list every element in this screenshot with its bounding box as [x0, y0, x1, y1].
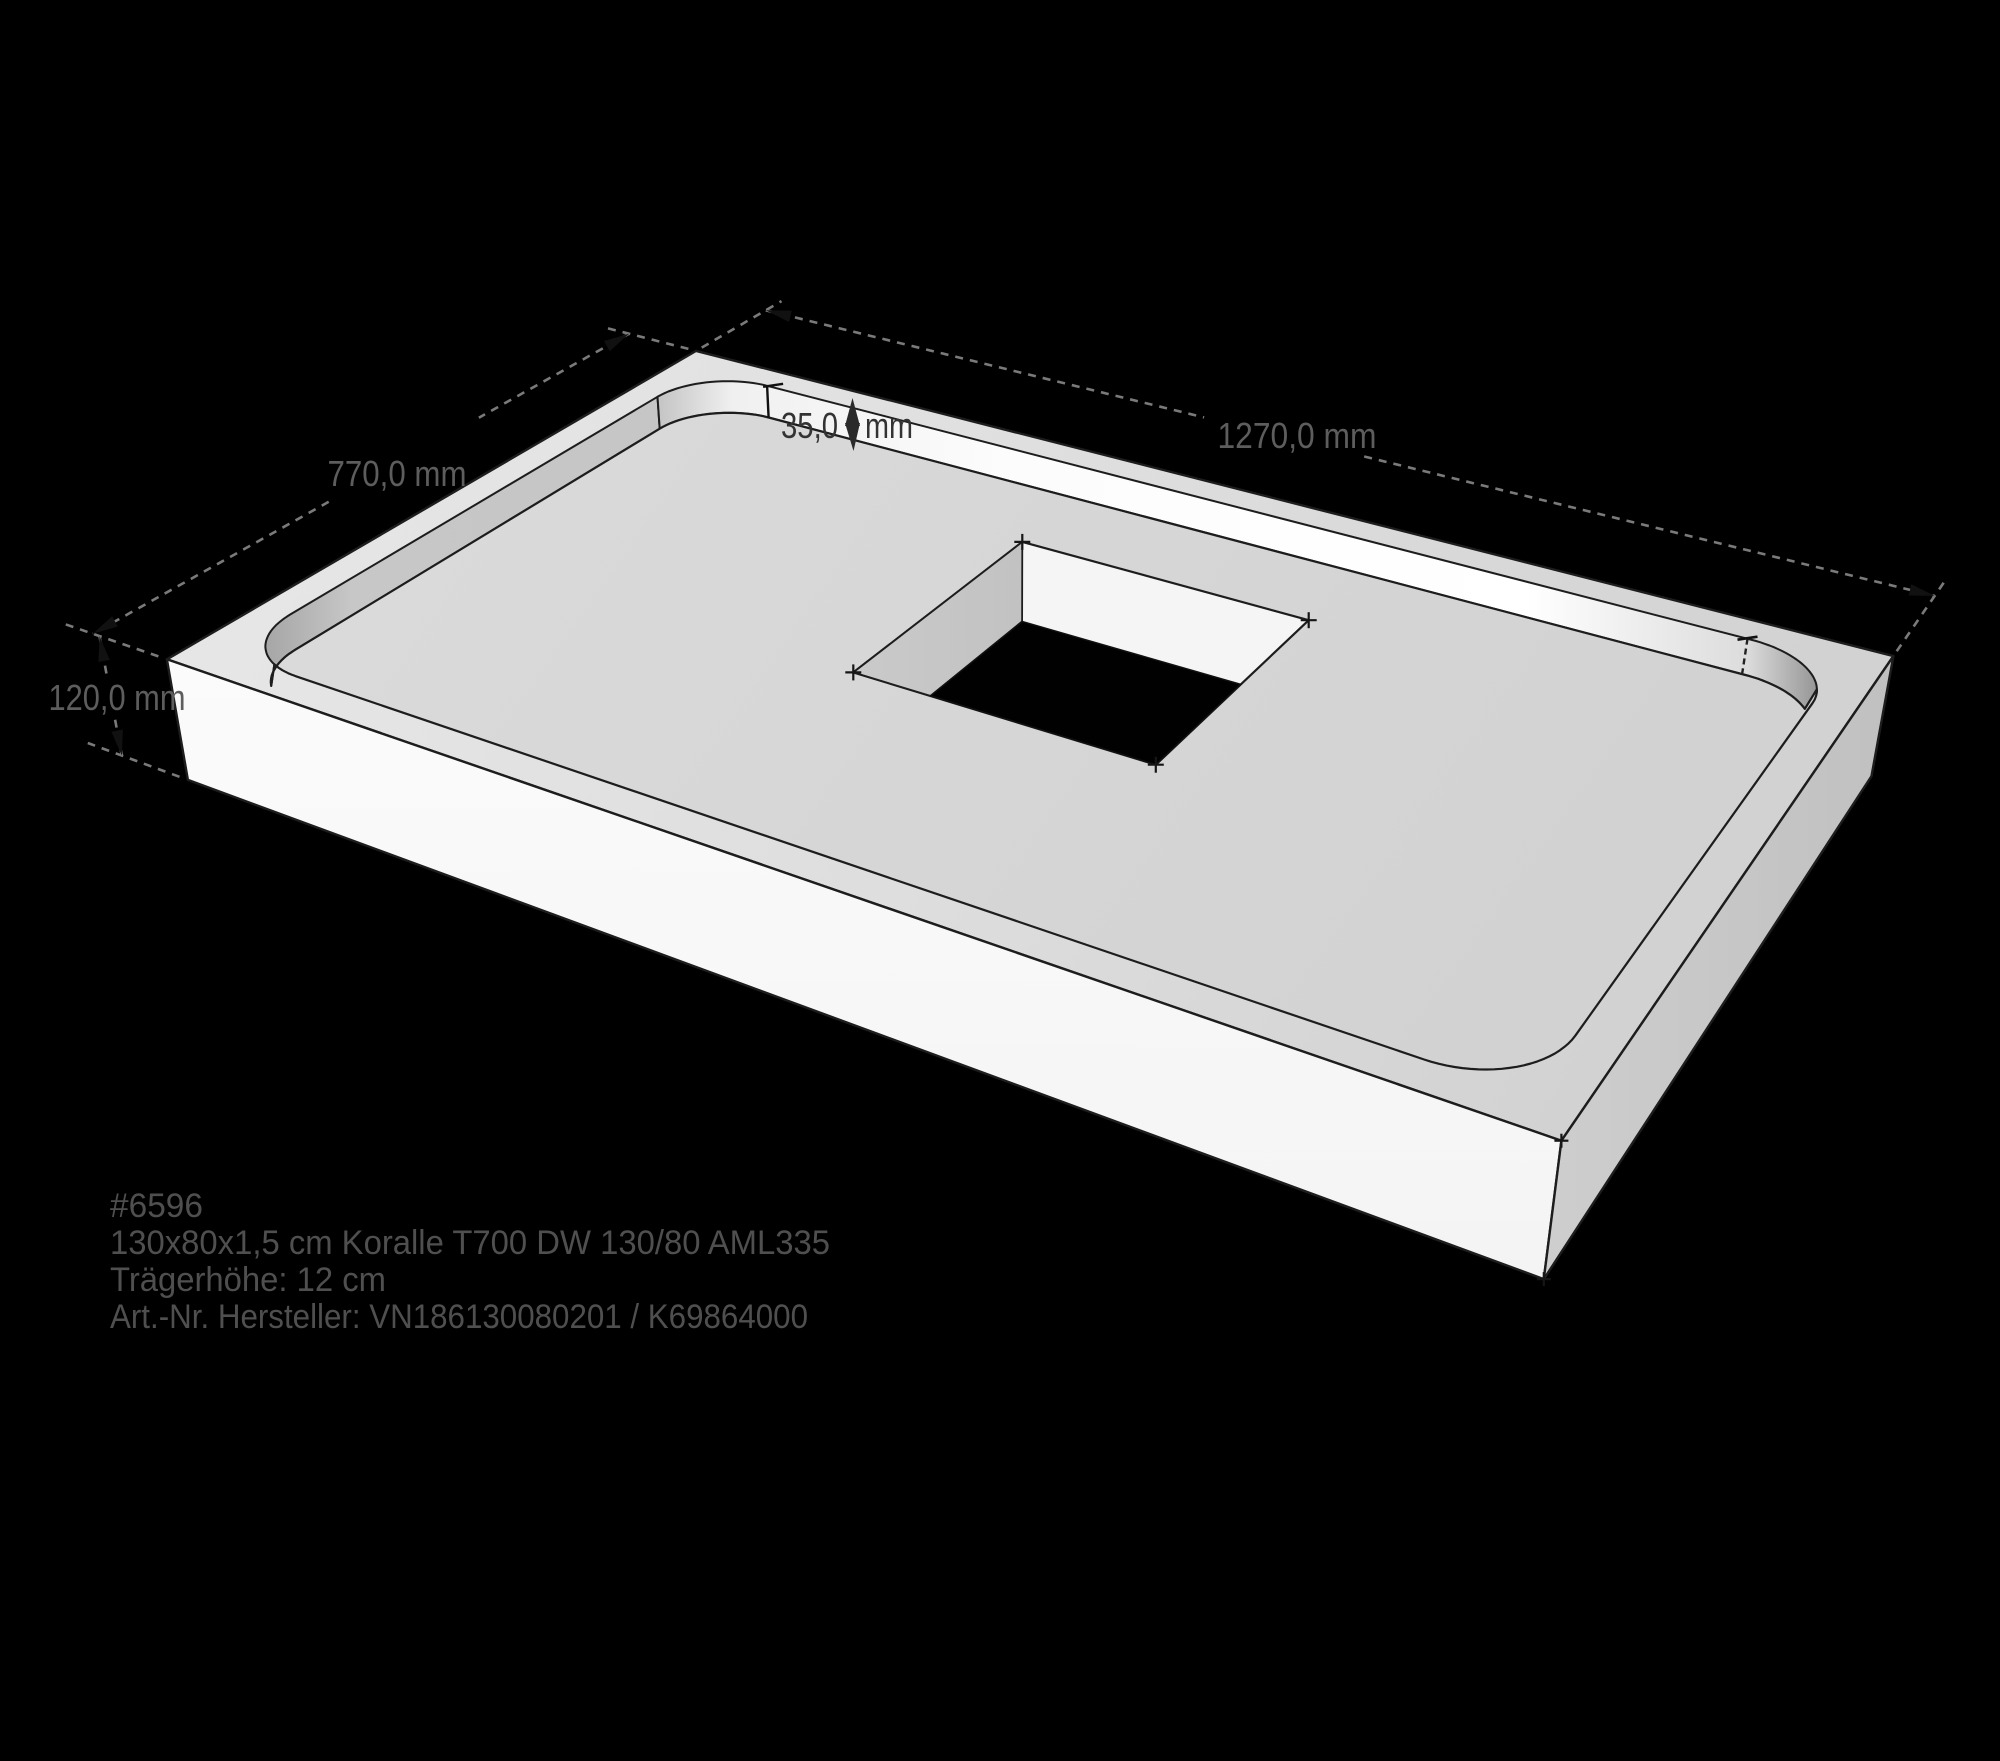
svg-text:Trägerhöhe: 12 cm: Trägerhöhe: 12 cm — [110, 1261, 386, 1299]
svg-text:120,0 mm: 120,0 mm — [49, 677, 186, 718]
svg-text:mm: mm — [865, 405, 913, 446]
svg-text:770,0 mm: 770,0 mm — [328, 453, 467, 494]
svg-text:130x80x1,5 cm Koralle T700 DW: 130x80x1,5 cm Koralle T700 DW 130/80 AML… — [110, 1224, 830, 1262]
svg-text:Art.-Nr. Hersteller: VN1861300: Art.-Nr. Hersteller: VN186130080201 / K6… — [110, 1298, 808, 1336]
svg-text:1270,0 mm: 1270,0 mm — [1218, 415, 1377, 456]
svg-text:#6596: #6596 — [110, 1187, 203, 1225]
svg-text:35,0: 35,0 — [781, 405, 838, 446]
